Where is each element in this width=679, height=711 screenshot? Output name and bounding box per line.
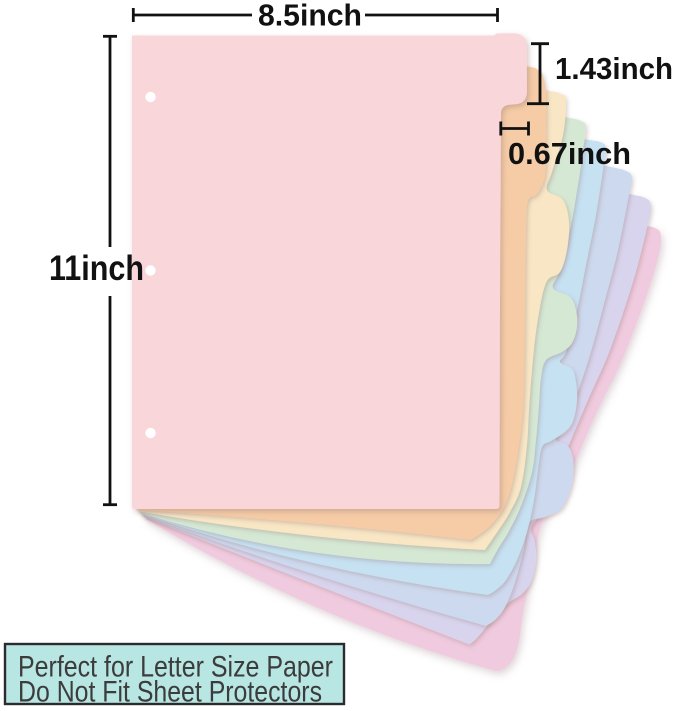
svg-text:0.67inch: 0.67inch (508, 136, 631, 171)
svg-text:Do Not Fit Sheet Protectors: Do Not Fit Sheet Protectors (18, 676, 322, 709)
svg-text:8.5inch: 8.5inch (258, 0, 362, 33)
svg-text:1.43inch: 1.43inch (555, 51, 673, 86)
svg-text:11inch: 11inch (49, 249, 144, 288)
